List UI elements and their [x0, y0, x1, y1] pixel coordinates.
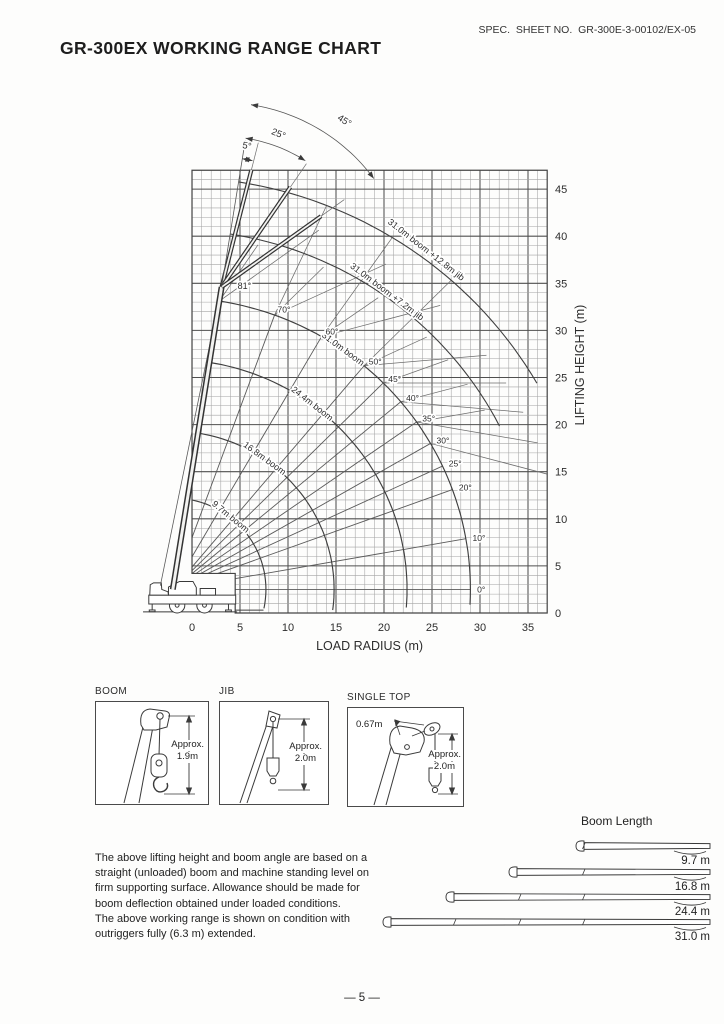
single-top-offset-value: 0.67m: [355, 720, 383, 731]
svg-text:10: 10: [282, 622, 294, 634]
svg-text:0: 0: [189, 622, 195, 634]
svg-text:20°: 20°: [459, 483, 472, 493]
svg-text:40°: 40°: [406, 393, 419, 403]
note-line: firm supporting surface. Allowance shoul…: [95, 881, 413, 896]
boom-length-label: 24.4 m: [675, 906, 710, 918]
svg-text:50°: 50°: [369, 356, 382, 366]
svg-text:15: 15: [555, 467, 567, 479]
single-top-detail-box: 0.67m Approx. 2.0m: [347, 707, 464, 807]
svg-text:5: 5: [555, 561, 561, 573]
crane-illustration: [143, 581, 237, 613]
svg-text:25: 25: [426, 622, 438, 634]
svg-text:30: 30: [474, 622, 486, 634]
boom-length-drawing: [517, 869, 710, 876]
svg-text:45: 45: [555, 184, 567, 196]
svg-text:5: 5: [237, 622, 243, 634]
axis-labels: 05101520253035051015202530354045LOAD RAD…: [189, 184, 587, 653]
svg-text:9.7m boom: 9.7m boom: [210, 499, 251, 535]
boom-angle-lines: [173, 315, 471, 589]
svg-text:45°: 45°: [335, 113, 353, 130]
boom-length-drawing: [584, 843, 710, 850]
note-line: The above lifting height and boom angle …: [95, 851, 413, 866]
boom-box-title: BOOM: [95, 686, 127, 697]
svg-text:15: 15: [330, 622, 342, 634]
note-line: The above working range is shown on cond…: [95, 912, 413, 927]
boom-length-diagram: 9.7 m16.8 m24.4 m31.0 m: [372, 806, 720, 946]
spec-sheet-page: SPEC. SHEET NO. GR-300E-3-00102/EX-05 GR…: [0, 0, 724, 1024]
jib-box-title: JIB: [219, 686, 235, 697]
boom-foot: [509, 867, 517, 877]
label-bracket: [674, 877, 706, 880]
boom-foot: [383, 917, 391, 927]
svg-text:24.4m boom: 24.4m boom: [290, 384, 336, 423]
single-top-box-title: SINGLE TOP: [347, 692, 411, 703]
page-title: GR-300EX WORKING RANGE CHART: [60, 38, 381, 59]
svg-text:0°: 0°: [477, 584, 485, 594]
note-line: outriggers fully (6.3 m) extended.: [95, 927, 413, 942]
svg-text:20: 20: [378, 622, 390, 634]
jib-approx-value: 2.0m: [294, 754, 317, 765]
svg-text:10: 10: [555, 514, 567, 526]
boom-foot: [576, 841, 584, 851]
label-bracket: [674, 851, 706, 854]
svg-text:60°: 60°: [325, 327, 338, 337]
jib-approx-label: Approx.: [288, 742, 323, 753]
label-bracket: [674, 927, 706, 930]
svg-text:LOAD RADIUS (m): LOAD RADIUS (m): [316, 639, 423, 653]
svg-text:25°: 25°: [270, 126, 288, 142]
note-text: The above lifting height and boom angle …: [95, 851, 413, 942]
svg-text:25°: 25°: [449, 459, 462, 469]
svg-text:35°: 35°: [422, 414, 435, 424]
svg-text:35: 35: [522, 622, 534, 634]
working-range-chart: 9.7m boom16.8m boom24.4m boom31.0m boom3…: [70, 90, 650, 668]
boom-length-label: 31.0 m: [675, 931, 710, 943]
boom-length-drawing: [454, 894, 710, 901]
svg-text:0: 0: [555, 608, 561, 620]
boom-length-label: 16.8 m: [675, 881, 710, 893]
spec-sheet-number: SPEC. SHEET NO. GR-300E-3-00102/EX-05: [479, 24, 696, 36]
svg-text:5°: 5°: [241, 140, 252, 152]
note-line: straight (unloaded) boom and machine sta…: [95, 866, 413, 881]
svg-text:40: 40: [555, 231, 567, 243]
svg-text:35: 35: [555, 278, 567, 290]
jib-detail-box: Approx. 2.0m: [219, 701, 329, 805]
boom-detail-box: Approx. 1.9m: [95, 701, 209, 805]
svg-text:30: 30: [555, 325, 567, 337]
chart-grid-area: 9.7m boom16.8m boom24.4m boom31.0m boom3…: [173, 170, 549, 613]
svg-text:45°: 45°: [388, 374, 401, 384]
svg-text:81°: 81°: [238, 281, 252, 291]
svg-text:70°: 70°: [278, 305, 291, 315]
svg-text:20: 20: [555, 420, 567, 432]
boom-length-label: 9.7 m: [681, 855, 710, 867]
svg-text:25: 25: [555, 373, 567, 385]
label-bracket: [674, 902, 706, 905]
svg-text:10°: 10°: [473, 533, 486, 543]
boom-foot: [446, 892, 454, 902]
svg-text:LIFTING HEIGHT (m): LIFTING HEIGHT (m): [573, 305, 587, 426]
svg-text:31.0m boom +7.2m jib: 31.0m boom +7.2m jib: [348, 261, 425, 323]
single-top-approx-value: 2.0m: [433, 762, 456, 773]
page-number: — 5 —: [0, 992, 724, 1004]
single-top-approx-label: Approx.: [427, 750, 462, 761]
boom-approx-label: Approx.: [170, 740, 205, 751]
note-line: boom deflection obtained under loaded co…: [95, 897, 413, 912]
boom-approx-value: 1.9m: [176, 752, 199, 763]
svg-text:30°: 30°: [437, 436, 450, 446]
boom-length-drawing: [391, 919, 710, 926]
